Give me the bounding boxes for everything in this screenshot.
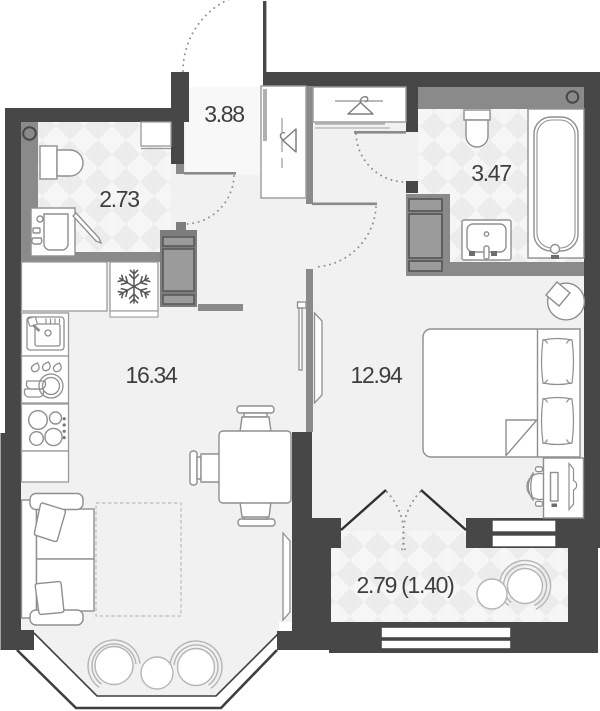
svg-text:2.79 (1.40): 2.79 (1.40) [357,572,455,598]
svg-text:3.47: 3.47 [471,160,511,186]
svg-text:3.88: 3.88 [204,101,244,127]
svg-text:12.94: 12.94 [350,362,403,388]
svg-text:16.34: 16.34 [125,362,178,388]
svg-text:2.73: 2.73 [99,186,139,212]
